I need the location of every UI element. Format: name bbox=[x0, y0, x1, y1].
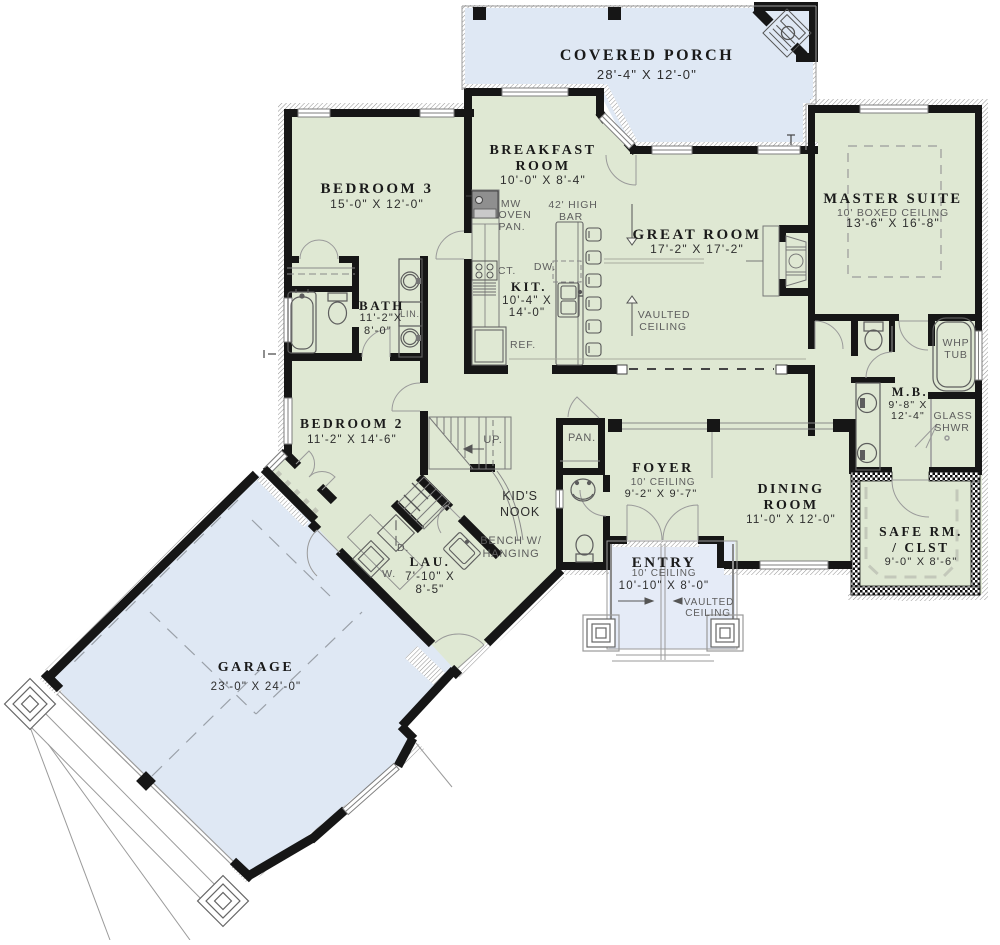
svg-text:VAULTED: VAULTED bbox=[638, 309, 690, 321]
svg-text:11'-0" X 12'-0": 11'-0" X 12'-0" bbox=[746, 514, 836, 526]
svg-text:NOOK: NOOK bbox=[500, 505, 540, 519]
svg-text:DINING: DINING bbox=[757, 482, 824, 497]
svg-text:OVEN: OVEN bbox=[499, 209, 532, 221]
svg-text:FOYER: FOYER bbox=[632, 461, 694, 476]
svg-text:SAFE RM.: SAFE RM. bbox=[879, 524, 963, 539]
svg-text:KIT.: KIT. bbox=[511, 279, 547, 294]
svg-text:11'-2" X 14'-6": 11'-2" X 14'-6" bbox=[307, 434, 397, 446]
svg-text:8'-5": 8'-5" bbox=[416, 584, 445, 596]
svg-text:BEDROOM 3: BEDROOM 3 bbox=[321, 181, 434, 197]
svg-text:W.: W. bbox=[382, 568, 396, 580]
svg-text:HANGING: HANGING bbox=[483, 548, 540, 560]
svg-text:TUB: TUB bbox=[944, 349, 967, 361]
svg-text:MASTER SUITE: MASTER SUITE bbox=[823, 191, 962, 207]
svg-text:10' CEILING: 10' CEILING bbox=[632, 568, 697, 579]
svg-text:VAULTED: VAULTED bbox=[684, 597, 734, 608]
svg-text:M.B.: M.B. bbox=[892, 385, 928, 399]
svg-text:SHWR: SHWR bbox=[934, 422, 969, 434]
svg-text:UP.: UP. bbox=[483, 434, 502, 446]
svg-text:23'-0" X 24'-0": 23'-0" X 24'-0" bbox=[211, 681, 302, 693]
svg-text:PAN.: PAN. bbox=[499, 221, 526, 233]
svg-text:10' CEILING: 10' CEILING bbox=[631, 477, 696, 488]
svg-text:GLASS: GLASS bbox=[933, 410, 972, 422]
svg-text:28'-4" X 12'-0": 28'-4" X 12'-0" bbox=[597, 67, 697, 82]
svg-text:17'-2" X 17'-2": 17'-2" X 17'-2" bbox=[650, 242, 744, 256]
svg-text:15'-0" X 12'-0": 15'-0" X 12'-0" bbox=[330, 197, 424, 211]
svg-text:DW.: DW. bbox=[534, 261, 556, 273]
svg-text:D.: D. bbox=[397, 542, 409, 554]
svg-text:ROOM: ROOM bbox=[515, 159, 570, 174]
svg-text:10'-4" X: 10'-4" X bbox=[502, 295, 552, 307]
svg-text:8'-0": 8'-0" bbox=[364, 325, 392, 337]
svg-text:10'-10" X 8'-0": 10'-10" X 8'-0" bbox=[619, 580, 710, 592]
svg-text:BATH: BATH bbox=[359, 298, 405, 313]
svg-text:COVERED PORCH: COVERED PORCH bbox=[560, 47, 734, 64]
svg-text:7'-10" X: 7'-10" X bbox=[405, 571, 455, 583]
svg-text:14'-0": 14'-0" bbox=[509, 307, 546, 319]
svg-text:/ CLST: / CLST bbox=[891, 540, 949, 555]
svg-text:PAN.: PAN. bbox=[568, 432, 596, 444]
svg-text:LAU.: LAU. bbox=[410, 554, 451, 569]
svg-text:11'-2"X: 11'-2"X bbox=[360, 312, 403, 324]
svg-text:12'-4": 12'-4" bbox=[891, 410, 925, 422]
svg-text:13'-6" X 16'-8": 13'-6" X 16'-8" bbox=[846, 216, 940, 230]
svg-text:9'-0" X 8'-6": 9'-0" X 8'-6" bbox=[885, 556, 958, 568]
svg-text:CT.: CT. bbox=[498, 265, 516, 277]
svg-text:10'-0" X 8'-4": 10'-0" X 8'-4" bbox=[500, 173, 586, 187]
svg-text:LIN.: LIN. bbox=[400, 309, 420, 319]
svg-text:GARAGE: GARAGE bbox=[218, 660, 294, 675]
svg-text:42' HIGH: 42' HIGH bbox=[548, 199, 597, 211]
svg-text:WHP: WHP bbox=[943, 337, 970, 349]
svg-text:BENCH W/: BENCH W/ bbox=[480, 535, 542, 547]
svg-text:BEDROOM 2: BEDROOM 2 bbox=[300, 416, 404, 431]
svg-text:ROOM: ROOM bbox=[763, 498, 818, 513]
svg-text:REF.: REF. bbox=[510, 339, 536, 351]
svg-text:CEILING: CEILING bbox=[685, 608, 731, 619]
svg-text:CEILING: CEILING bbox=[639, 321, 687, 333]
svg-text:BAR: BAR bbox=[559, 211, 583, 223]
svg-text:GREAT ROOM: GREAT ROOM bbox=[632, 227, 761, 243]
svg-text:9'-2" X 9'-7": 9'-2" X 9'-7" bbox=[625, 488, 698, 500]
svg-text:BREAKFAST: BREAKFAST bbox=[489, 143, 596, 158]
svg-text:KID'S: KID'S bbox=[502, 489, 538, 503]
